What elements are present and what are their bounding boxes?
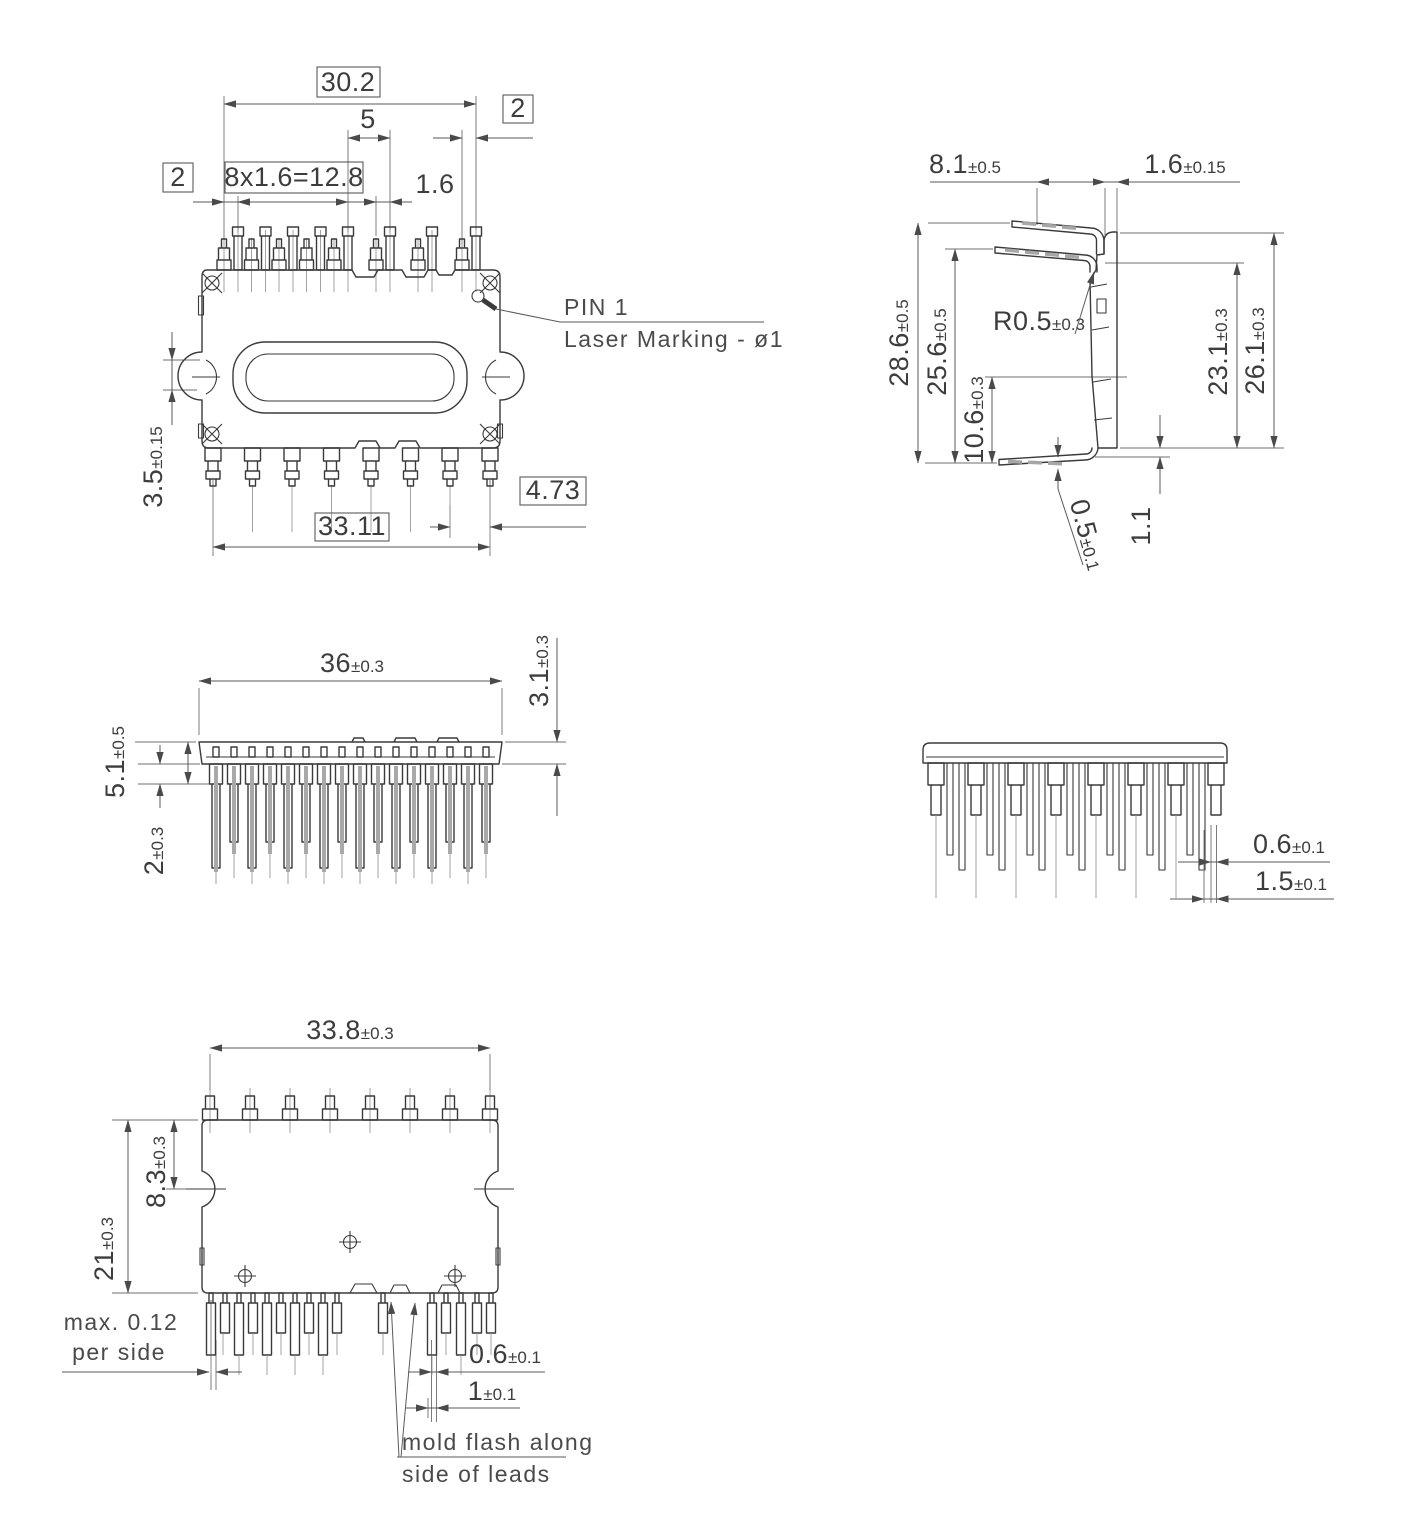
- label-recess-inner: [246, 354, 454, 401]
- mold-flash-label-2: side of leads: [402, 1461, 551, 1487]
- back-stub-centerlines: [936, 815, 1176, 898]
- corner-crosshair-marks: [202, 273, 500, 444]
- dim-1-bottom: 1±0.1: [468, 1376, 517, 1406]
- bottom-top-pin-centerlines: [210, 1088, 490, 1133]
- side-body-outline: [1090, 232, 1117, 448]
- top-pins-tall: [233, 227, 482, 270]
- dim-33-11: 33.11: [318, 511, 386, 541]
- back-view: 0.6±0.1 1.5±0.1: [923, 743, 1334, 903]
- front-body: [199, 738, 502, 764]
- back-body: [923, 743, 1227, 763]
- max-flash-label-1: max. 0.12: [64, 1309, 179, 1335]
- top-pins-short: [217, 239, 469, 270]
- bottom-top-pins: [203, 1096, 498, 1120]
- top-view: 30.2 5 2 2 8x1.6=12.8 1.6 3.5±0.15 33.11…: [138, 67, 784, 556]
- dim-10-6: 10.6±0.3: [959, 376, 989, 464]
- back-stubs: [928, 763, 1224, 815]
- dim-0-6-bottom: 0.6±0.1: [469, 1339, 541, 1369]
- bottom-body-outline: [202, 1120, 498, 1293]
- dim-28-6: 28.6±0.5: [884, 299, 914, 387]
- dim-1-1: 1.1: [1126, 506, 1156, 545]
- front-view: 36±0.3 3.1±0.3 5.1±0.5 2±0.3: [100, 635, 566, 884]
- dim-5-1: 5.1±0.5: [100, 726, 130, 798]
- dim-1-6-side: 1.6±0.15: [1144, 149, 1225, 179]
- max-flash-label-2: per side: [72, 1339, 166, 1365]
- bottom-edge-bumps: [350, 1284, 460, 1293]
- back-measured-pin-lines: [1204, 825, 1217, 903]
- label-recess-outer: [233, 342, 467, 413]
- dim-r0-5: R0.5±0.3: [993, 306, 1085, 336]
- pin1-leader-arrow: [483, 300, 496, 309]
- side-body-step: [1097, 299, 1106, 313]
- dim-3-1: 3.1±0.3: [524, 635, 554, 707]
- pin1-leader-line: [496, 309, 764, 322]
- dim-3-5: 3.5±0.15: [138, 426, 168, 507]
- edge-slot-left-top: [199, 296, 204, 315]
- mold-flash-label-1: mold flash along: [402, 1429, 594, 1455]
- dim-0-5: 0.5±0.1: [1064, 496, 1112, 573]
- dim-pitch: 8x1.6=12.8: [224, 162, 363, 192]
- package-outline-drawing: 30.2 5 2 2 8x1.6=12.8 1.6 3.5±0.15 33.11…: [0, 0, 1414, 1539]
- dim-8-3: 8.3±0.3: [141, 1136, 171, 1208]
- edge-slot-left-bottom: [199, 424, 204, 438]
- dim-8-1: 8.1±0.5: [929, 149, 1001, 179]
- dim-1-5-back: 1.5±0.1: [1255, 866, 1327, 896]
- dim-21: 21±0.3: [89, 1217, 119, 1281]
- dim-36: 36±0.3: [320, 648, 384, 678]
- pin1-label: PIN 1: [564, 294, 629, 320]
- laser-marking-label: Laser Marking - ø1: [564, 326, 784, 352]
- dim-26-1: 26.1±0.3: [1240, 307, 1270, 395]
- bottom-crosshair-marks: [234, 1231, 466, 1287]
- dim-23-1: 23.1±0.3: [1203, 308, 1233, 396]
- bottom-view: 33.8±0.3 21±0.3 8.3±0.3 max. 0.12 per si…: [62, 1015, 594, 1487]
- side-view: 8.1±0.5 1.6±0.15 28.6±0.5 25.6±0.5 10.6±…: [884, 149, 1284, 573]
- dim-2: 2±0.3: [139, 827, 169, 876]
- side-notch-arcs: [192, 360, 510, 394]
- dim-1-6: 1.6: [415, 169, 454, 199]
- dim-5: 5: [360, 104, 376, 134]
- dim-2-right: 2: [510, 93, 526, 123]
- drawing-svg: 30.2 5 2 2 8x1.6=12.8 1.6 3.5±0.15 33.11…: [0, 0, 1414, 1539]
- dim-0-6-back: 0.6±0.1: [1253, 829, 1325, 859]
- dim-2-left: 2: [170, 162, 186, 192]
- mold-flash-arrow-1: [391, 1302, 399, 1457]
- front-extension-lines: [135, 688, 566, 784]
- bottom-bottom-pins: [207, 1293, 496, 1355]
- dim-25-6: 25.6±0.5: [922, 308, 952, 396]
- back-thin-pins: [947, 763, 1205, 870]
- dim-33-8: 33.8±0.3: [306, 1015, 394, 1045]
- bottom-bottom-pin-centerlines: [211, 1333, 491, 1375]
- bottom-pins: [205, 448, 498, 486]
- bottom-extension-lines: [112, 1054, 490, 1422]
- dim-30-2: 30.2: [321, 67, 376, 97]
- dim-4-73: 4.73: [526, 475, 581, 505]
- front-pins-inner: [214, 766, 488, 872]
- pin1-marker-circle: [472, 290, 484, 302]
